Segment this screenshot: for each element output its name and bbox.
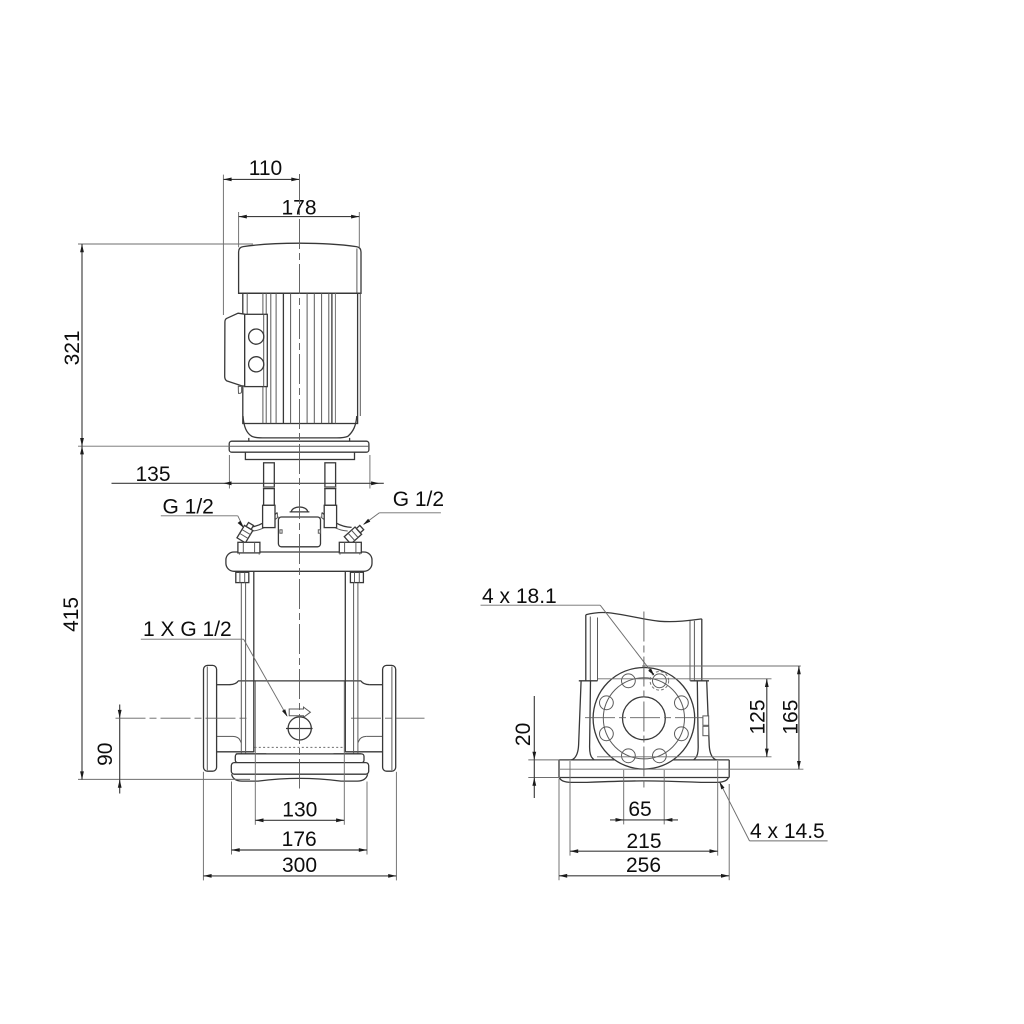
svg-text:65: 65	[628, 798, 651, 821]
svg-text:1 X G 1/2: 1 X G 1/2	[143, 618, 232, 641]
svg-text:178: 178	[281, 197, 316, 220]
svg-text:321: 321	[61, 330, 84, 365]
svg-text:G 1/2: G 1/2	[163, 496, 214, 519]
svg-text:135: 135	[135, 463, 170, 486]
svg-text:215: 215	[626, 830, 661, 853]
svg-text:4 x 18.1: 4 x 18.1	[482, 585, 557, 608]
svg-text:G 1/2: G 1/2	[393, 488, 444, 511]
svg-text:256: 256	[626, 854, 661, 877]
svg-text:415: 415	[60, 597, 83, 632]
svg-text:165: 165	[779, 700, 802, 735]
svg-text:110: 110	[249, 157, 282, 180]
svg-text:300: 300	[282, 854, 317, 877]
svg-text:176: 176	[282, 828, 317, 851]
svg-text:90: 90	[94, 743, 117, 766]
svg-text:125: 125	[747, 699, 770, 734]
svg-text:20: 20	[512, 723, 535, 746]
svg-text:4 x 14.5: 4 x 14.5	[750, 820, 825, 843]
svg-text:130: 130	[282, 799, 317, 822]
